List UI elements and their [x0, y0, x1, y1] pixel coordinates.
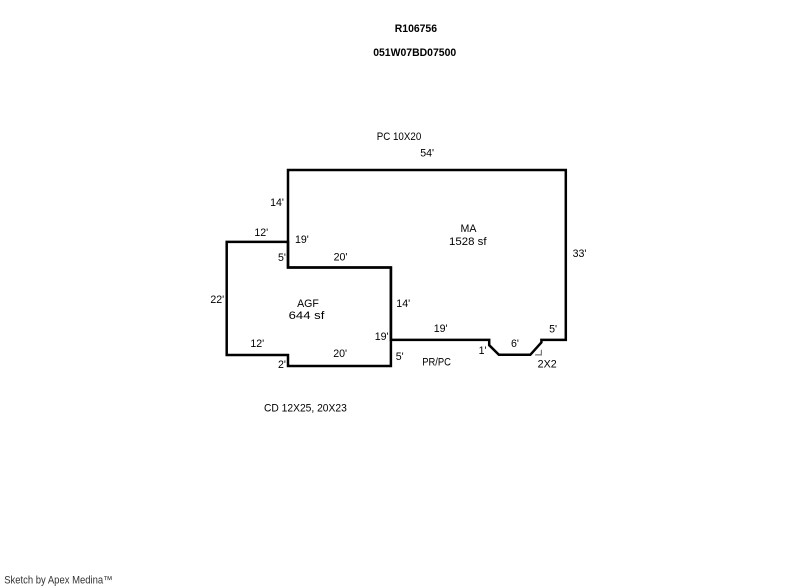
svg-text:CD 12X25, 20X23: CD 12X25, 20X23	[264, 403, 347, 415]
svg-text:AGF: AGF	[297, 298, 319, 310]
svg-text:19': 19'	[375, 331, 389, 343]
svg-text:33': 33'	[573, 248, 587, 260]
svg-text:12': 12'	[250, 338, 264, 350]
svg-text:54': 54'	[420, 148, 434, 160]
svg-text:6': 6'	[511, 338, 519, 350]
svg-text:20': 20'	[333, 348, 347, 360]
svg-text:5': 5'	[549, 323, 557, 335]
svg-text:644 sf: 644 sf	[289, 310, 325, 322]
svg-text:19': 19'	[434, 323, 448, 335]
svg-text:19': 19'	[295, 234, 309, 246]
svg-text:PC 10X20: PC 10X20	[377, 131, 422, 143]
svg-text:PR/PC: PR/PC	[422, 357, 451, 369]
svg-text:R106756: R106756	[395, 23, 437, 35]
svg-text:051W07BD07500: 051W07BD07500	[373, 47, 456, 59]
svg-text:14': 14'	[270, 197, 284, 209]
svg-text:2': 2'	[278, 359, 286, 371]
svg-text:14': 14'	[396, 298, 410, 310]
svg-text:12': 12'	[254, 227, 268, 239]
svg-text:Sketch by Apex Medina™: Sketch by Apex Medina™	[4, 574, 112, 586]
svg-text:5': 5'	[278, 252, 286, 264]
svg-text:22': 22'	[210, 294, 224, 306]
svg-text:2X2: 2X2	[538, 359, 557, 371]
svg-text:20': 20'	[334, 252, 348, 264]
svg-text:MA: MA	[461, 223, 478, 235]
svg-text:1528 sf: 1528 sf	[449, 236, 487, 248]
svg-text:5': 5'	[396, 351, 404, 363]
svg-text:1': 1'	[479, 345, 487, 357]
